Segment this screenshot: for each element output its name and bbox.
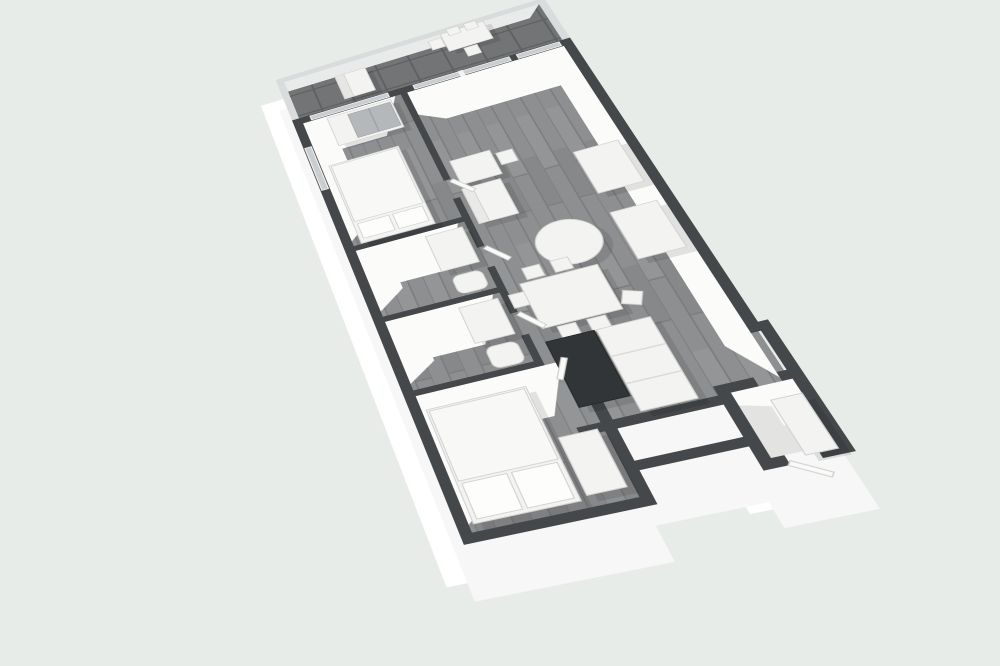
dining-chair-6 xyxy=(622,290,643,304)
floor-plan-svg xyxy=(276,0,874,557)
floor-plan-3d-projection xyxy=(276,0,874,557)
floor-plan-scene xyxy=(0,0,1000,666)
